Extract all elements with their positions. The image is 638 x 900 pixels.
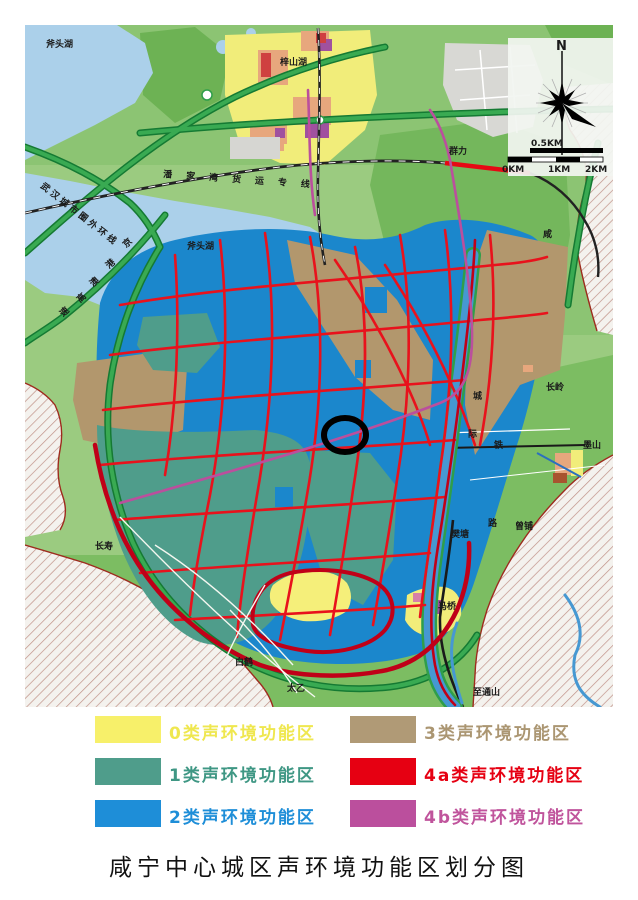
label-moshan: 墨山 (583, 439, 601, 451)
label-qunli: 群力 (448, 145, 467, 157)
map-page: N 0.5KM 0KM 1KM 2KM 斧头湖 梓山湖 群力 斧头湖 长岭 墨山… (0, 0, 638, 900)
legend-swatch-zone3 (350, 716, 416, 743)
label-zishan-lake: 梓山湖 (280, 56, 307, 68)
legend-label-zone3: 3类声环境功能区 (424, 719, 571, 744)
label-zhitongshan: 至通山 (473, 686, 500, 698)
map-title: 咸宁中心城区声环境功能区划分图 (0, 848, 638, 882)
legend-label-zone4a: 4a类声环境功能区 (424, 761, 584, 786)
legend-swatch-zone4b (350, 800, 416, 827)
legend-swatch-zone1 (95, 758, 161, 785)
label-changshou: 长寿 (95, 540, 113, 552)
legend-label-zone4b: 4b类声环境功能区 (424, 803, 585, 828)
svg-text:咸: 咸 (543, 228, 552, 240)
label-taiyi: 太乙 (286, 682, 305, 694)
svg-text:际: 际 (468, 429, 477, 440)
label-changling: 长岭 (546, 381, 564, 393)
label-baihe: 白鹤 (235, 656, 253, 668)
svg-text:铁: 铁 (494, 439, 503, 451)
legend-label-zone0: 0类声环境功能区 (169, 719, 316, 744)
compass-box: N 0.5KM 0KM 1KM 2KM (502, 38, 613, 176)
map-canvas: N 0.5KM 0KM 1KM 2KM 斧头湖 梓山湖 群力 斧头湖 长岭 墨山… (25, 25, 613, 707)
legend-swatch-zone0 (95, 716, 161, 743)
map-svg: N 0.5KM 0KM 1KM 2KM 斧头湖 梓山湖 群力 斧头湖 长岭 墨山… (25, 25, 613, 707)
legend-label-zone2: 2类声环境功能区 (169, 803, 316, 828)
label-futou-lake-center: 斧头湖 (187, 240, 214, 252)
scale-label-half-km: 0.5KM (531, 139, 563, 149)
interchange-1 (202, 90, 212, 100)
legend-swatch-zone4a (350, 758, 416, 785)
svg-text:城: 城 (473, 390, 482, 402)
label-fantang: 樊塘 (451, 528, 469, 540)
label-maqiao: 马桥 (438, 600, 457, 612)
scale-tick-0km: 0KM (502, 165, 524, 175)
label-futou-lake-nw: 斧头湖 (46, 38, 73, 50)
legend-swatch-zone2 (95, 800, 161, 827)
legend-label-zone1: 1类声环境功能区 (169, 761, 316, 786)
svg-text:路: 路 (488, 517, 498, 529)
scale-tick-2km: 2KM (585, 165, 607, 175)
scale-tick-1km: 1KM (548, 165, 570, 175)
label-zengpu: 曾铺 (515, 520, 533, 532)
compass-north-label: N (556, 39, 567, 54)
